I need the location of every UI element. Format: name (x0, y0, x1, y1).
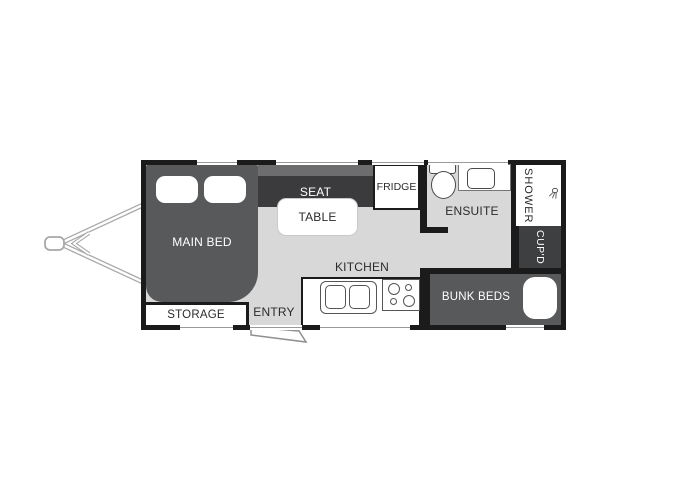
window (372, 160, 424, 165)
shower-head-icon (546, 187, 559, 202)
fridge-label: FRIDGE (377, 181, 417, 193)
storage-label: STORAGE (167, 309, 224, 321)
window (276, 160, 358, 165)
kitchen-sink-icon (320, 281, 377, 314)
pillow-icon (156, 176, 198, 203)
table-label: TABLE (298, 210, 336, 224)
window (180, 325, 233, 330)
bunk-beds-label: BUNK BEDS (430, 288, 522, 306)
storage: STORAGE (146, 302, 249, 325)
shower-label: SHOWER (521, 168, 535, 224)
kitchen-label: KITCHEN (318, 259, 406, 274)
toilet-icon (431, 171, 456, 199)
entry-door-opening (250, 325, 302, 330)
window (506, 325, 544, 330)
window (428, 160, 508, 165)
seat-label: SEAT (300, 185, 331, 199)
interior-wall (420, 274, 430, 325)
cupboard: CUP'D (519, 226, 561, 268)
window (197, 160, 237, 165)
interior-wall (420, 227, 448, 233)
sink-icon (467, 168, 495, 189)
pillow-icon (204, 176, 246, 203)
table: TABLE (277, 198, 358, 236)
stove-icon (382, 279, 420, 311)
fridge: FRIDGE (373, 164, 420, 210)
caravan-floorplan: MAIN BED SEAT TABLE FRIDGE ENSUITE SHOWE… (0, 0, 700, 483)
window (320, 325, 410, 330)
interior-wall (420, 165, 427, 227)
pillow-icon (523, 277, 557, 319)
interior-wall (511, 226, 519, 273)
ensuite-label: ENSUITE (427, 203, 517, 219)
entry-label: ENTRY (250, 303, 298, 321)
main-bed-label: MAIN BED (146, 234, 258, 250)
seat-backrest (258, 165, 373, 176)
tow-hitch-icon (45, 204, 145, 283)
cupboard-label: CUP'D (534, 230, 546, 264)
